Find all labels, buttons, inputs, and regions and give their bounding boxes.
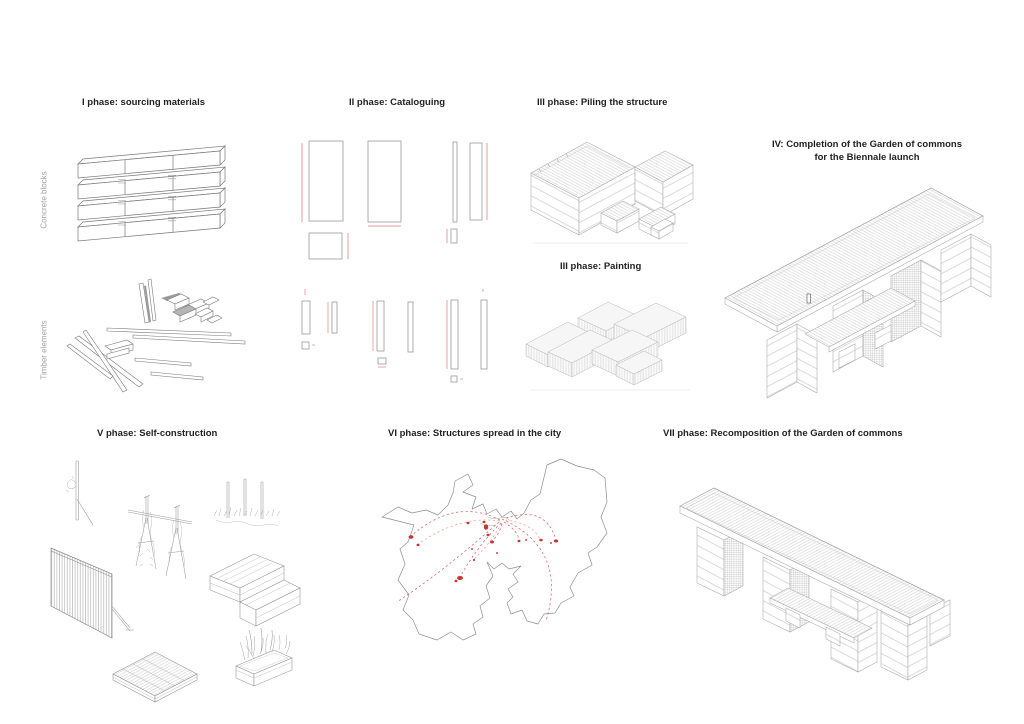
drawing-completed-pavilion — [713, 176, 1020, 408]
heading-phase-4-line2: for the Biennale launch — [727, 151, 1007, 164]
structure-location-dots — [409, 521, 559, 582]
heading-phase-3-painting: III phase: Painting — [560, 261, 641, 272]
row-label-timber-elements: Timber elements — [40, 320, 49, 379]
drawing-catalogue-concrete — [295, 130, 495, 270]
heading-phase-6: VI phase: Structures spread in the city — [388, 428, 561, 439]
row-label-concrete-blocks: Concrete blocks — [40, 171, 49, 228]
drawing-concrete-block-stack — [70, 140, 250, 248]
drawing-self-construction — [40, 448, 330, 703]
city-boundary — [382, 459, 607, 640]
heading-phase-1: I phase: sourcing materials — [82, 97, 205, 108]
heading-phase-5: V phase: Self-construction — [97, 428, 217, 439]
drawing-piling-structure — [523, 115, 698, 250]
heading-phase-4: IV: Completion of the Garden of commons … — [727, 138, 1007, 164]
drawing-catalogue-timber — [295, 288, 495, 400]
drawing-painting-structure — [518, 282, 703, 397]
heading-phase-3-piling: III phase: Piling the structure — [537, 97, 667, 108]
drawing-recomposed-pavilion — [658, 448, 990, 703]
drawing-timber-pile — [55, 278, 265, 400]
phases-diagram-sheet: Concrete blocks Timber elements I phase:… — [0, 0, 1024, 724]
heading-phase-2: II phase: Cataloguing — [349, 97, 445, 108]
heading-phase-7: VII phase: Recomposition of the Garden o… — [663, 428, 903, 439]
heading-phase-4-line1: IV: Completion of the Garden of commons — [727, 138, 1007, 151]
drawing-city-map — [360, 453, 658, 698]
